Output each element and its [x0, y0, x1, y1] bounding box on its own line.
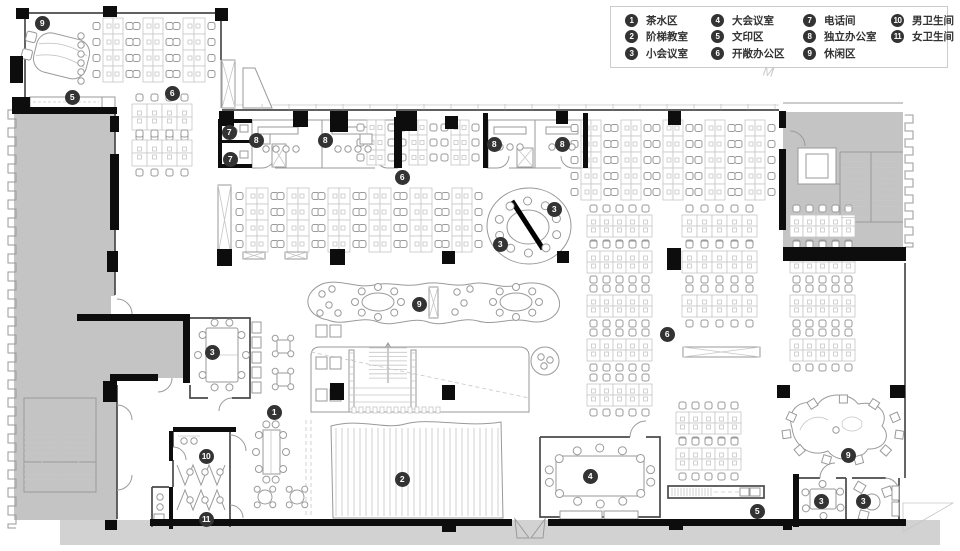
legend-item-4: 4大会议室 [711, 12, 803, 29]
legend-item-1: 1茶水区 [625, 12, 711, 29]
legend-number-badge: 2 [625, 30, 638, 43]
legend-label: 开敞办公区 [732, 46, 785, 61]
legend-item-11: 11女卫生间 [891, 29, 955, 46]
duct-diagonal [243, 68, 272, 108]
legend-number-badge: 4 [711, 14, 724, 27]
legend-label: 茶水区 [646, 13, 678, 28]
room-marker-3: 3 [814, 494, 829, 509]
legend-label: 小会议室 [646, 46, 688, 61]
room-marker-9: 9 [35, 16, 50, 31]
room-marker-8: 8 [318, 133, 333, 148]
legend-number-badge: 6 [711, 47, 724, 60]
legend-item-9: 9休闲区 [803, 45, 891, 62]
room-marker-4: 4 [583, 469, 598, 484]
legend-item-3: 3小会议室 [625, 45, 711, 62]
stepped-classroom [306, 343, 559, 518]
legend-label: 休闲区 [824, 46, 856, 61]
room-marker-8: 8 [555, 137, 570, 152]
room-marker-7: 7 [223, 152, 238, 167]
room-marker-2: 2 [395, 472, 410, 487]
legend-number-badge: 5 [711, 30, 724, 43]
legend-number-badge: 1 [625, 14, 638, 27]
room-marker-9: 9 [841, 448, 856, 463]
meeting-rooms-bottom-right [799, 463, 899, 525]
legend-item-6: 6开敞办公区 [711, 45, 803, 62]
legend-label: 文印区 [732, 29, 764, 44]
legend-number-badge: 3 [625, 47, 638, 60]
legend-number-badge: 7 [803, 14, 816, 27]
room-marker-3: 3 [205, 345, 220, 360]
legend-label: 独立办公室 [824, 29, 877, 44]
floorplan-page: 95678876883396311024115933 1茶水区2阶梯教室3小会议… [0, 0, 960, 551]
legend-item-7: 7电话间 [803, 12, 891, 29]
legend-label: 男卫生间 [912, 13, 954, 28]
room-marker-7: 7 [222, 125, 237, 140]
room-marker-9: 9 [412, 297, 427, 312]
room-marker-6: 6 [165, 86, 180, 101]
legend-label: 阶梯教室 [646, 29, 688, 44]
watermark: M [762, 63, 775, 79]
legend-item-5: 5文印区 [711, 29, 803, 46]
legend-label: 大会议室 [732, 13, 774, 28]
room-marker-3: 3 [493, 237, 508, 252]
room-marker-8: 8 [249, 133, 264, 148]
legend-number-badge: 8 [803, 30, 816, 43]
legend-label: 女卫生间 [912, 29, 954, 44]
room-marker-3: 3 [856, 494, 871, 509]
legend-item-2: 2阶梯教室 [625, 29, 711, 46]
room-marker-8: 8 [487, 137, 502, 152]
legend: 1茶水区2阶梯教室3小会议室4大会议室5文印区6开敞办公区7电话间8独立办公室9… [610, 6, 948, 68]
floorplan-drawing [0, 0, 960, 551]
legend-item-8: 8独立办公室 [803, 29, 891, 46]
room-marker-10: 10 [199, 449, 214, 464]
room-marker-5: 5 [65, 90, 80, 105]
room-marker-1: 1 [267, 405, 282, 420]
legend-number-badge: 11 [891, 30, 904, 43]
restrooms [152, 432, 246, 527]
room-marker-5: 5 [750, 504, 765, 519]
room-marker-3: 3 [547, 202, 562, 217]
room-marker-6: 6 [660, 327, 675, 342]
legend-item-10: 10男卫生间 [891, 12, 955, 29]
legend-number-badge: 9 [803, 47, 816, 60]
legend-label: 电话间 [824, 13, 856, 28]
room-marker-11: 11 [199, 512, 214, 527]
room-marker-6: 6 [395, 170, 410, 185]
legend-number-badge: 10 [891, 14, 904, 27]
